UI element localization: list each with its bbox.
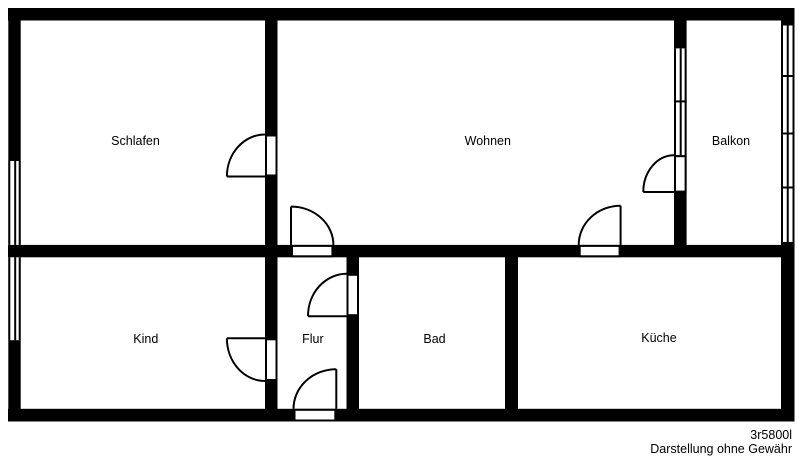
svg-text:Darstellung ohne Gewähr: Darstellung ohne Gewähr xyxy=(650,442,792,456)
svg-text:Kind: Kind xyxy=(133,332,158,346)
svg-text:Bad: Bad xyxy=(423,332,445,346)
svg-text:Schlafen: Schlafen xyxy=(111,134,160,148)
svg-text:Balkon: Balkon xyxy=(712,134,750,148)
svg-text:Küche: Küche xyxy=(641,331,676,345)
svg-text:Flur: Flur xyxy=(302,332,324,346)
svg-text:3r5800l: 3r5800l xyxy=(750,428,792,442)
svg-text:Wohnen: Wohnen xyxy=(465,134,511,148)
